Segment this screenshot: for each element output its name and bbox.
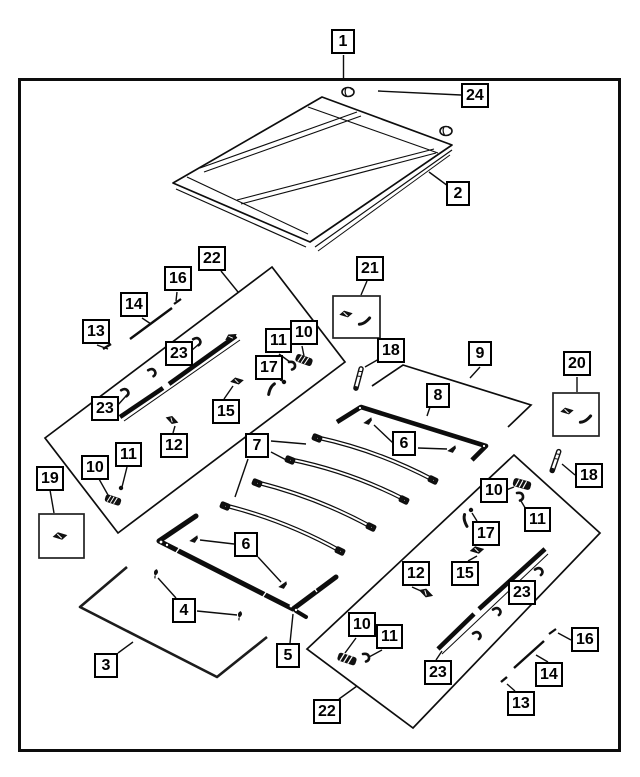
callout-2[interactable]: 2 bbox=[446, 181, 470, 206]
callout-3[interactable]: 3 bbox=[94, 653, 118, 678]
callout-23-b[interactable]: 23 bbox=[91, 396, 119, 421]
callout-22-b[interactable]: 22 bbox=[313, 699, 341, 724]
leader-lines bbox=[50, 55, 577, 699]
callout-11-a[interactable]: 11 bbox=[265, 328, 292, 353]
callout-7[interactable]: 7 bbox=[245, 433, 269, 458]
hinge-pin-icon bbox=[353, 366, 363, 390]
callout-16-a[interactable]: 16 bbox=[164, 266, 192, 291]
callout-11-b[interactable]: 11 bbox=[115, 442, 142, 467]
callout-11-c[interactable]: 11 bbox=[376, 624, 403, 649]
callout-6-b[interactable]: 6 bbox=[234, 532, 258, 557]
retainer-clip-icon bbox=[440, 127, 452, 136]
callout-16-b[interactable]: 16 bbox=[571, 627, 599, 652]
callout-12-a[interactable]: 12 bbox=[160, 433, 188, 458]
callout-4[interactable]: 4 bbox=[172, 598, 196, 623]
callout-14-b[interactable]: 14 bbox=[535, 662, 563, 687]
callout-15-b[interactable]: 15 bbox=[451, 561, 479, 586]
cover-outline bbox=[173, 97, 452, 242]
callout-18-a[interactable]: 18 bbox=[377, 338, 405, 363]
parts-box-20 bbox=[553, 393, 599, 436]
cover-assembly bbox=[173, 88, 452, 252]
parts-box-21 bbox=[333, 296, 380, 338]
callout-8[interactable]: 8 bbox=[426, 383, 450, 408]
retainer-clip-icon bbox=[342, 88, 354, 97]
callout-10-c[interactable]: 10 bbox=[348, 612, 376, 637]
callout-15-a[interactable]: 15 bbox=[212, 399, 240, 424]
callout-13-a[interactable]: 13 bbox=[82, 319, 110, 344]
callout-11-d[interactable]: 11 bbox=[524, 507, 551, 532]
callout-17-b[interactable]: 17 bbox=[472, 521, 500, 546]
panel-outline bbox=[307, 455, 600, 728]
parts-box-19 bbox=[39, 514, 84, 558]
callout-12-b[interactable]: 12 bbox=[402, 561, 430, 586]
callout-5[interactable]: 5 bbox=[276, 643, 300, 668]
callout-23-d[interactable]: 23 bbox=[424, 660, 452, 685]
callout-21[interactable]: 21 bbox=[356, 256, 384, 281]
callout-20[interactable]: 20 bbox=[563, 351, 591, 376]
callout-10-d[interactable]: 10 bbox=[480, 478, 508, 503]
callout-18-b[interactable]: 18 bbox=[575, 463, 603, 488]
callout-6-a[interactable]: 6 bbox=[392, 431, 416, 456]
callout-23-a[interactable]: 23 bbox=[165, 341, 193, 366]
latch-parts-bottom bbox=[337, 652, 369, 666]
callout-22-a[interactable]: 22 bbox=[198, 246, 226, 271]
parts-diagram: 1 24 2 22 16 14 13 21 23 23 10 11 17 15 … bbox=[0, 0, 640, 777]
hinge-pin-icon bbox=[550, 449, 562, 473]
callout-1[interactable]: 1 bbox=[331, 29, 355, 54]
callout-24[interactable]: 24 bbox=[461, 83, 489, 108]
callout-13-b[interactable]: 13 bbox=[507, 691, 535, 716]
callout-10-a[interactable]: 10 bbox=[290, 320, 318, 345]
callout-10-b[interactable]: 10 bbox=[81, 455, 109, 480]
callout-19[interactable]: 19 bbox=[36, 466, 64, 491]
callout-23-c[interactable]: 23 bbox=[508, 580, 536, 605]
callout-9[interactable]: 9 bbox=[468, 341, 492, 366]
callout-14-a[interactable]: 14 bbox=[120, 292, 148, 317]
callout-17-a[interactable]: 17 bbox=[255, 355, 283, 380]
